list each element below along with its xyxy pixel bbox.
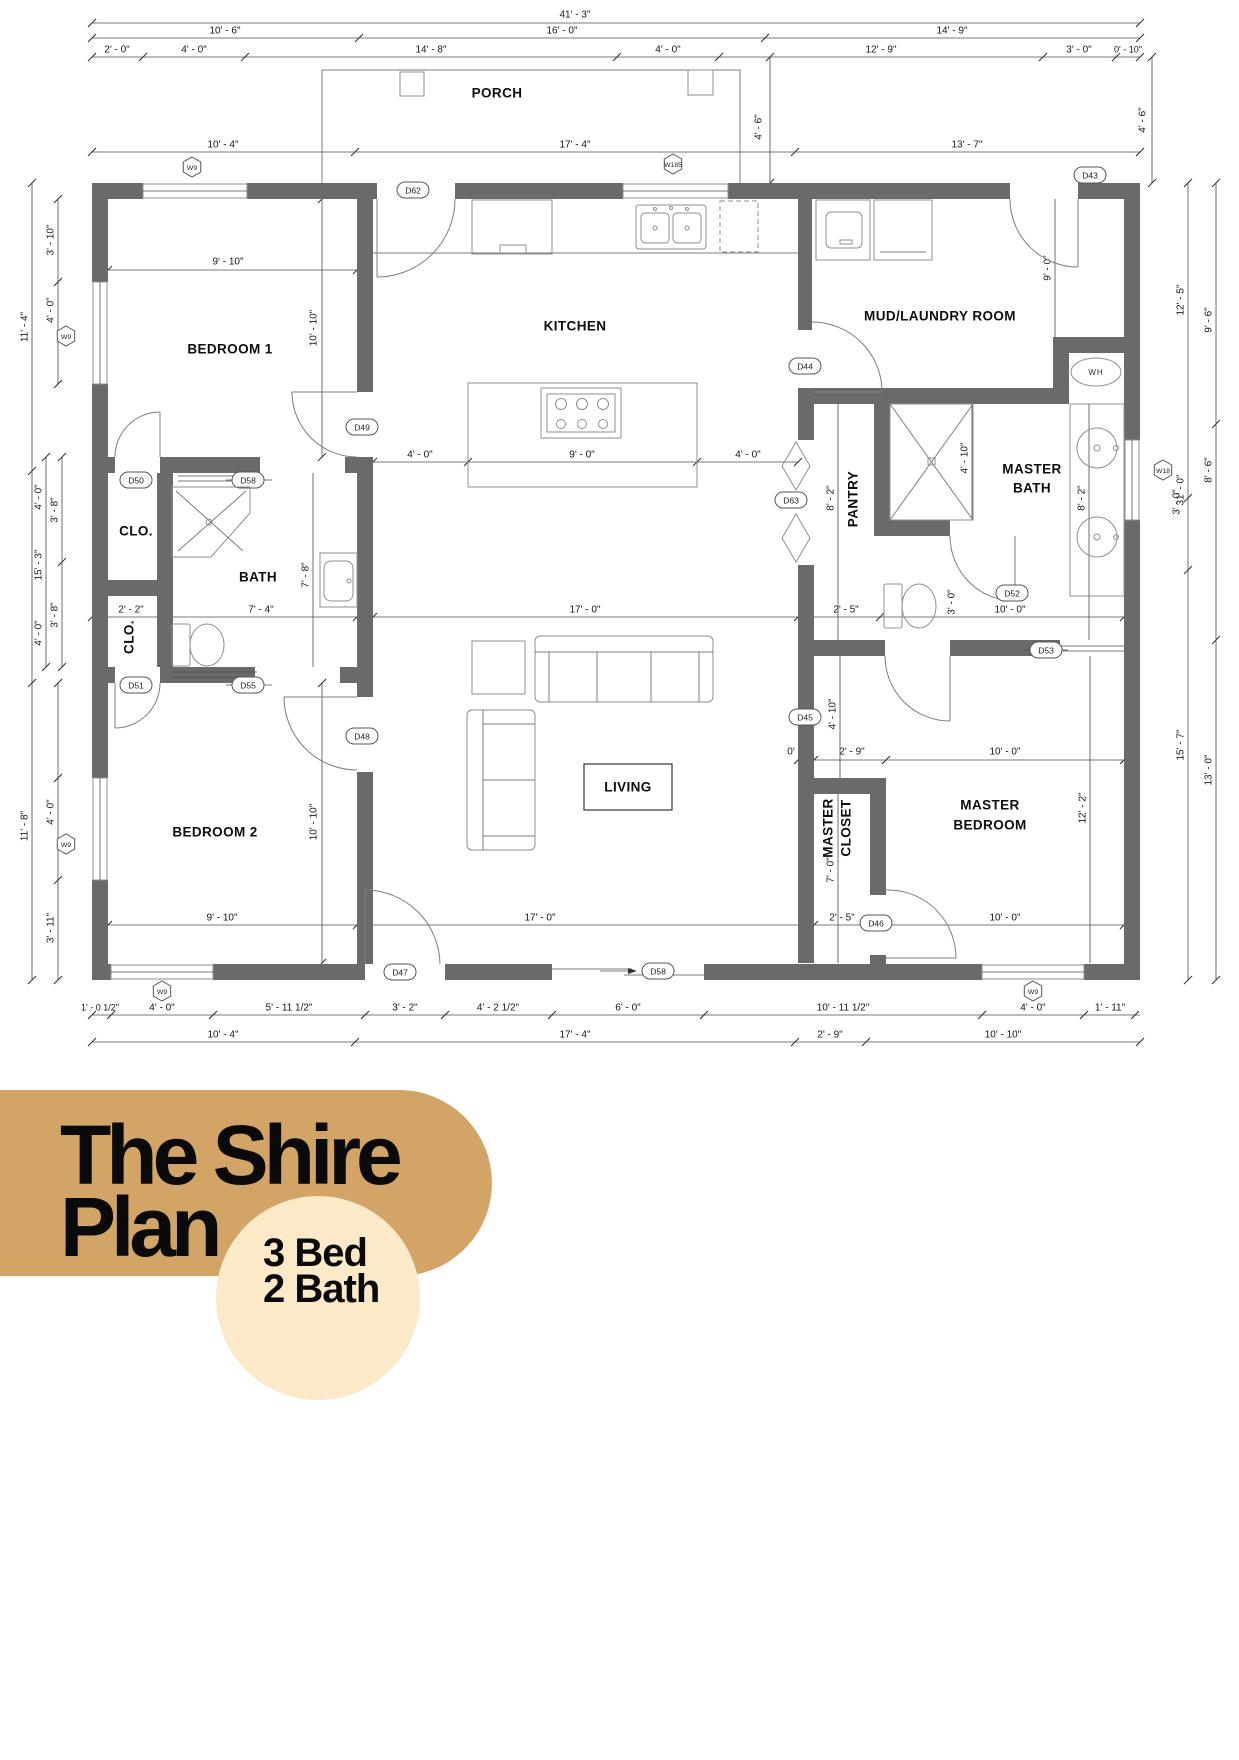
- room-label-bedroom1: BEDROOM 1: [187, 342, 272, 357]
- dim-label: 4' - 10": [828, 698, 839, 729]
- coffee-table: [472, 641, 525, 694]
- door-tag-label: D46: [868, 918, 884, 928]
- dim-label: 10' - 6": [209, 26, 240, 37]
- door-tag: D51: [120, 677, 152, 693]
- dim-label: 4' - 6": [1138, 107, 1149, 133]
- room-label-master-bath: MASTER: [1002, 462, 1061, 477]
- door-tag-label: D50: [128, 475, 144, 485]
- branding: The Shire Plan 3 Bed 2 Bath: [0, 1090, 492, 1400]
- door-tag-label: D48: [354, 731, 370, 741]
- dim-label: 9' - 10": [206, 913, 237, 924]
- dim-label: 2' - 0": [104, 45, 130, 56]
- door-tag-label: D44: [797, 361, 813, 371]
- dim-label: 1' - 11": [1095, 1003, 1126, 1014]
- door-tag: D47: [384, 964, 416, 980]
- wall: [160, 457, 260, 473]
- window-tag: W18: [1154, 460, 1171, 480]
- door-tag-label: D53: [1038, 645, 1054, 655]
- dim-label: 0' - 10": [1114, 44, 1142, 54]
- door-tag-label: D45: [797, 712, 813, 722]
- dim-label: 8' - 2": [1077, 485, 1088, 511]
- dim-label: 12' - 2": [1078, 792, 1089, 823]
- dim-label: 4' - 10": [960, 442, 971, 473]
- dim-label: 10' - 0": [989, 747, 1020, 758]
- door-tag: D50: [120, 472, 152, 488]
- door-d62: [377, 199, 455, 277]
- dim-label: 4' - 0": [34, 620, 45, 646]
- washer: [816, 200, 870, 260]
- water-heater-label: WH: [1088, 368, 1103, 377]
- door-tag: D52: [996, 585, 1028, 601]
- room-label-closet1: CLO.: [119, 524, 153, 539]
- wall: [1053, 353, 1069, 404]
- wall: [1124, 183, 1140, 440]
- wall: [1084, 964, 1140, 980]
- wall: [814, 778, 886, 794]
- dim-label: 4' - 0": [149, 1003, 175, 1014]
- room-label-master-bedroom: MASTER: [960, 798, 1019, 813]
- window-tag-label: W9: [1028, 989, 1038, 996]
- dim-label: 9' - 6": [1204, 307, 1215, 333]
- living-furniture: [467, 636, 713, 850]
- door-tag: D48: [346, 728, 378, 744]
- dim-label: 4' - 6": [754, 114, 765, 140]
- dim-label: 2' - 5": [833, 605, 859, 616]
- dim-label: 2' - 5": [829, 913, 855, 924]
- room-label-mud-laundry: MUD/LAUNDRY ROOM: [864, 309, 1016, 324]
- floor-plan-page: 41' - 3" 10' - 6" 16' - 0" 14' - 9" 2' -…: [0, 0, 1239, 1755]
- sofa: [535, 636, 713, 702]
- dryer: [874, 200, 932, 260]
- door-tag: D58: [232, 472, 264, 488]
- dim-label: 10' - 10": [309, 309, 320, 346]
- window-tag: W9: [57, 834, 74, 854]
- window: [982, 965, 1084, 979]
- refrigerator: [720, 201, 758, 252]
- dim-label: 12' - 9": [865, 45, 896, 56]
- bottom-dimensions: 1' - 0 1/2" 4' - 0" 5' - 11 1/2" 3' - 2"…: [81, 981, 1144, 1046]
- room-label-living: LIVING: [604, 780, 651, 795]
- wall: [1053, 337, 1140, 353]
- dim-label: 4' - 0": [655, 45, 681, 56]
- dim-label: 10' - 0": [994, 605, 1025, 616]
- wall: [357, 667, 373, 697]
- kitchen-island: [468, 383, 697, 487]
- dim-label: 1' - 0 1/2": [81, 1002, 119, 1012]
- vanity-sink: [320, 553, 357, 607]
- door-tag-label: D55: [240, 680, 256, 690]
- toilet: [172, 624, 224, 666]
- door-tag: D49: [346, 419, 378, 435]
- dim-label: 3' - 2": [392, 1003, 418, 1014]
- dim-label: 7' - 4": [248, 605, 274, 616]
- dim-label: 4' - 0": [34, 484, 45, 510]
- door-tag-label: D47: [392, 967, 408, 977]
- wall: [247, 183, 377, 199]
- door-tag: D45: [789, 709, 821, 725]
- window: [93, 282, 107, 384]
- porch: PORCH 4' - 6": [322, 53, 774, 187]
- window: [1125, 440, 1139, 520]
- sliding-door-d58: [552, 968, 704, 975]
- wall: [728, 183, 1010, 199]
- right-dimensions: 4' - 6" 12' - 5" 31' - 0" 15' - 7" 9' - …: [1138, 53, 1220, 984]
- wall: [92, 183, 108, 282]
- wall: [108, 667, 115, 683]
- dim-label: 10' - 4": [207, 140, 238, 151]
- room-label-master-bedroom2: BEDROOM: [953, 818, 1026, 833]
- dim-label: 10' - 11 1/2": [817, 1003, 870, 1014]
- door-tag: D46: [860, 915, 892, 931]
- dim-label: 12' - 5": [1176, 284, 1187, 315]
- dim-label: 10' - 0": [989, 913, 1020, 924]
- dim-label: 8' - 2": [826, 485, 837, 511]
- wall: [798, 656, 814, 963]
- room-label-master-closet2: CLOSET: [839, 799, 854, 857]
- door-tag: D55: [232, 677, 264, 693]
- door-tag: D62: [397, 182, 429, 198]
- dim-label: 9' - 0": [569, 450, 595, 461]
- door-tag-label: D52: [1004, 588, 1020, 598]
- dim-label: 4' - 0": [407, 450, 433, 461]
- room-label-bedroom2: BEDROOM 2: [172, 825, 257, 840]
- wall: [455, 183, 623, 199]
- porch-post: [688, 70, 713, 95]
- wall: [108, 457, 115, 473]
- window-tag-label: W185: [664, 162, 682, 169]
- dim-label: 3' - 0": [1172, 489, 1183, 515]
- dim-label: 6' - 0": [615, 1003, 641, 1014]
- dim-label: 10' - 4": [207, 1030, 238, 1041]
- wall: [798, 404, 814, 440]
- dim-label: 4' - 0": [46, 799, 57, 825]
- dim-label: 15' - 7": [1176, 729, 1187, 760]
- window-tag-label: W9: [187, 165, 197, 172]
- wall: [108, 580, 165, 596]
- wall: [704, 964, 982, 980]
- room-label-pantry: PANTRY: [846, 471, 861, 527]
- dim-label: 17' - 0": [569, 605, 600, 616]
- room-label-master-bath2: BATH: [1013, 481, 1051, 496]
- dim-label: 17' - 0": [524, 913, 555, 924]
- water-heater: WH: [1071, 358, 1121, 386]
- dim-label: 2' - 2": [118, 605, 144, 616]
- dim-label: 5' - 11 1/2": [266, 1003, 313, 1014]
- dim-label: 7' - 0": [826, 857, 837, 883]
- dim-label: 4' - 0": [46, 297, 57, 323]
- dim-label: 41' - 3": [559, 10, 590, 21]
- door-tag-label: D51: [128, 680, 144, 690]
- door-tag-label: D43: [1082, 170, 1098, 180]
- window: [143, 184, 247, 198]
- top-dimensions: 41' - 3" 10' - 6" 16' - 0" 14' - 9" 2' -…: [88, 10, 1144, 156]
- wall: [812, 640, 885, 656]
- window: [93, 778, 107, 880]
- wall: [157, 473, 173, 667]
- brand-badge-line2: 2 Bath: [263, 1267, 379, 1311]
- dim-label: 14' - 8": [415, 45, 446, 56]
- wall: [874, 520, 950, 536]
- kitchen-fixtures: [373, 200, 798, 487]
- room-label-porch: PORCH: [472, 86, 523, 101]
- laundry-fixtures: WH: [816, 200, 1121, 386]
- dim-label: 9' - 10": [212, 257, 243, 268]
- room-label-master-closet: MASTER: [821, 798, 836, 857]
- dim-label: 4' - 2 1/2": [477, 1003, 520, 1014]
- wall: [92, 384, 108, 778]
- door-tag-label: D49: [354, 422, 370, 432]
- window-tag-label: W18: [1156, 468, 1170, 475]
- window: [623, 184, 728, 198]
- dim-label: 3' - 10": [46, 224, 57, 255]
- wall: [870, 794, 886, 895]
- door-d44: [812, 322, 882, 392]
- dim-label: 17' - 4": [559, 140, 590, 151]
- dim-label: 4' - 0": [735, 450, 761, 461]
- dim-label: 10' - 10": [309, 803, 320, 840]
- window-tag-label: W9: [61, 842, 71, 849]
- dim-label: 13' - 7": [951, 140, 982, 151]
- dim-label: 3' - 0": [947, 589, 958, 615]
- dim-label: 2' - 9": [817, 1030, 843, 1041]
- wall: [445, 964, 552, 980]
- window-tag-label: W9: [157, 989, 167, 996]
- door-tag: D53: [1030, 642, 1062, 658]
- dim-label: 14' - 9": [936, 26, 967, 37]
- door-d45: [885, 656, 950, 721]
- dim-label: 3' - 8": [50, 497, 61, 523]
- dim-label: 4' - 0": [1020, 1003, 1046, 1014]
- dim-label: 8' - 6": [1204, 457, 1215, 483]
- door-tag: D58: [642, 963, 674, 979]
- dim-label: 15' - 3": [34, 549, 45, 580]
- window-tag: W9: [183, 157, 200, 177]
- dim-label: 3' - 11": [46, 912, 57, 943]
- door-tag: D44: [789, 358, 821, 374]
- dim-label: 2' - 9": [839, 747, 865, 758]
- door-tag-label: D58: [240, 475, 256, 485]
- window-tag: W9: [1024, 981, 1041, 1001]
- wall: [798, 565, 814, 656]
- wall: [874, 404, 890, 536]
- floor-plan-drawing: 41' - 3" 10' - 6" 16' - 0" 14' - 9" 2' -…: [0, 0, 1239, 1755]
- cooktop: [541, 388, 621, 438]
- corner-shower: [172, 487, 250, 557]
- kitchen-sink: [636, 205, 706, 249]
- door-tag: D63: [775, 492, 807, 508]
- dim-label: 10' - 10": [985, 1030, 1022, 1041]
- window-tag-label: W9: [61, 334, 71, 341]
- window-tag: W185: [664, 154, 682, 174]
- room-label-bath: BATH: [239, 570, 277, 585]
- wall: [357, 199, 373, 392]
- wall: [870, 955, 886, 964]
- dim-label: 3' - 8": [50, 602, 61, 628]
- porch-post: [400, 72, 424, 96]
- left-dimensions: 11' - 4" 11' - 8" 4' - 0" 15' - 3" 4' - …: [20, 179, 75, 984]
- range: [472, 200, 552, 254]
- window-tag: W9: [153, 981, 170, 1001]
- toilet: [884, 584, 936, 628]
- door-d50: [115, 412, 160, 457]
- room-label-kitchen: KITCHEN: [544, 319, 607, 334]
- wall: [357, 457, 373, 667]
- wall: [798, 199, 812, 330]
- brand-title-line2: Plan: [60, 1180, 218, 1274]
- door-tag: D43: [1074, 167, 1106, 183]
- dim-label: 4' - 0": [181, 45, 207, 56]
- door-tag-label: D58: [650, 966, 666, 976]
- room-label-closet2: CLO.: [122, 620, 137, 654]
- windows: W9 W185: [93, 154, 1139, 979]
- living-label-box: LIVING: [584, 764, 672, 810]
- window: [111, 965, 213, 979]
- door-d47: [365, 890, 440, 964]
- dim-label: 17' - 4": [559, 1030, 590, 1041]
- wall: [1124, 520, 1140, 980]
- dim-label: 7' - 8": [301, 562, 312, 588]
- dim-label: 11' - 4": [20, 311, 31, 342]
- dim-label: 3' - 0": [1066, 45, 1092, 56]
- door-tag-label: D63: [783, 495, 799, 505]
- dim-label: 11' - 8": [20, 810, 31, 841]
- loveseat: [467, 710, 535, 850]
- wall: [798, 388, 1053, 404]
- window-tag: W9: [57, 326, 74, 346]
- door-tag-label: D62: [405, 185, 421, 195]
- wall: [92, 964, 111, 980]
- dim-label: 16' - 0": [546, 26, 577, 37]
- door-d46: [886, 890, 956, 958]
- dim-label: 13' - 0": [1204, 754, 1215, 785]
- wall: [213, 964, 365, 980]
